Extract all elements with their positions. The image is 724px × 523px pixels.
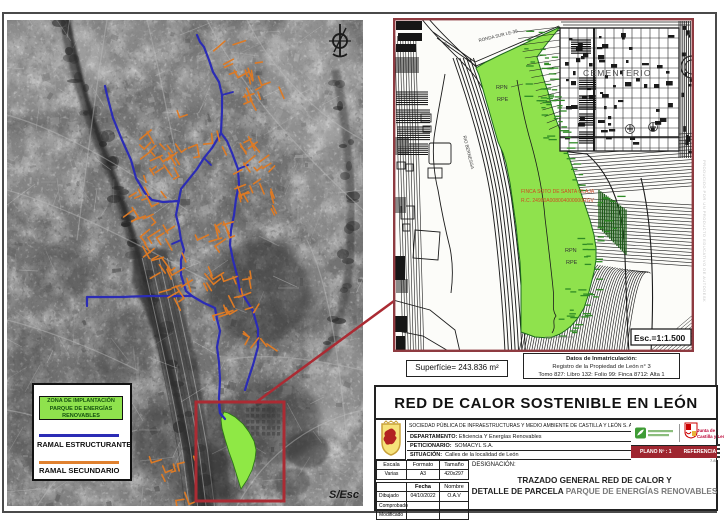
svg-text:FINCA SOTO DE SANTA OLAJA: FINCA SOTO DE SANTA OLAJA bbox=[521, 189, 595, 195]
svg-text:RPE: RPE bbox=[497, 97, 509, 103]
svg-text:24900A008004000000: 24900A008004000000 bbox=[545, 335, 574, 339]
svg-text:RPN: RPN bbox=[565, 248, 577, 254]
svg-text:R.C. 24900A008004000000RGV: R.C. 24900A008004000000RGV bbox=[521, 198, 594, 204]
svg-text:RPE: RPE bbox=[566, 260, 578, 266]
svg-text:CEMENTERIO: CEMENTERIO bbox=[583, 68, 652, 78]
svg-text:RPN: RPN bbox=[496, 85, 508, 91]
svg-text:Esc.=1:1.500: Esc.=1:1.500 bbox=[634, 333, 686, 343]
